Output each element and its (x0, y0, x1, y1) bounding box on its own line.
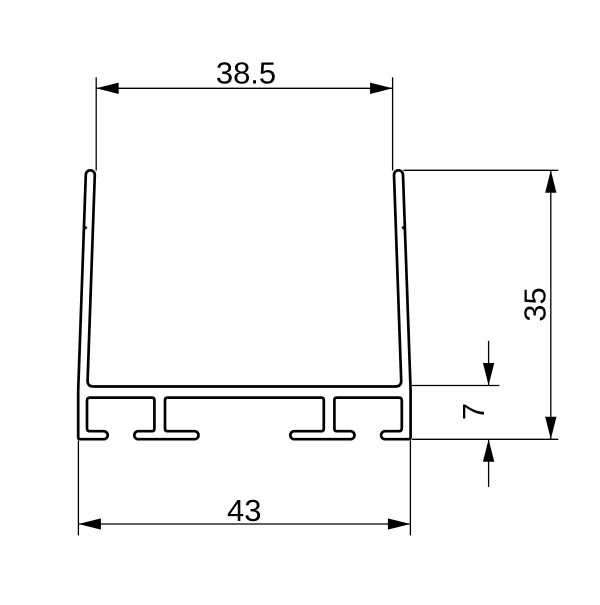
svg-text:43: 43 (227, 493, 261, 528)
svg-text:35: 35 (518, 287, 553, 321)
svg-text:7: 7 (456, 403, 491, 420)
svg-text:38.5: 38.5 (216, 56, 276, 91)
